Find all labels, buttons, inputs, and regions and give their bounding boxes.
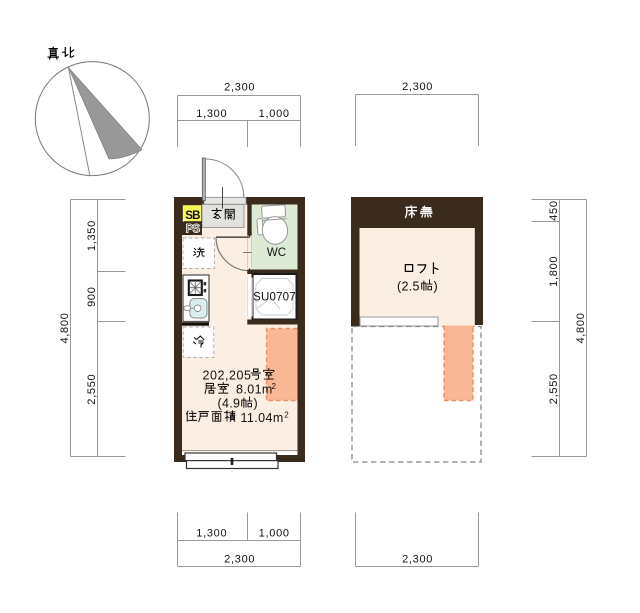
svg-text:4,800: 4,800	[575, 312, 587, 343]
svg-text:1,000: 1,000	[259, 108, 290, 120]
svg-text:2,300: 2,300	[224, 82, 255, 94]
svg-text:900: 900	[86, 286, 98, 306]
svg-text:202,205: 202,205	[203, 369, 252, 383]
svg-text:2,300: 2,300	[402, 81, 433, 93]
svg-text:2,300: 2,300	[224, 554, 255, 566]
svg-text:2,550: 2,550	[86, 374, 98, 405]
svg-text:8.01m: 8.01m	[236, 383, 273, 397]
svg-text:SU0707: SU0707	[253, 292, 296, 304]
svg-text:4,800: 4,800	[59, 312, 71, 343]
svg-text:(2.5: (2.5	[397, 280, 420, 294]
svg-text:1,350: 1,350	[86, 220, 98, 251]
svg-text:SB: SB	[185, 210, 200, 222]
svg-text:11.04m: 11.04m	[241, 411, 284, 425]
svg-text:2: 2	[272, 382, 277, 391]
svg-text:1,300: 1,300	[196, 528, 227, 540]
svg-text:): )	[254, 397, 258, 411]
svg-text:(4.9: (4.9	[218, 397, 241, 411]
svg-text:1,300: 1,300	[196, 108, 227, 120]
svg-text:1,800: 1,800	[548, 256, 560, 287]
svg-text:): )	[434, 280, 438, 294]
svg-text:WC: WC	[267, 247, 286, 259]
svg-text:2,550: 2,550	[548, 373, 560, 404]
svg-text:2,300: 2,300	[402, 554, 433, 566]
svg-text:PS: PS	[186, 224, 201, 236]
svg-text:2: 2	[284, 410, 289, 419]
svg-text:1,000: 1,000	[259, 528, 290, 540]
svg-text:450: 450	[548, 200, 560, 220]
